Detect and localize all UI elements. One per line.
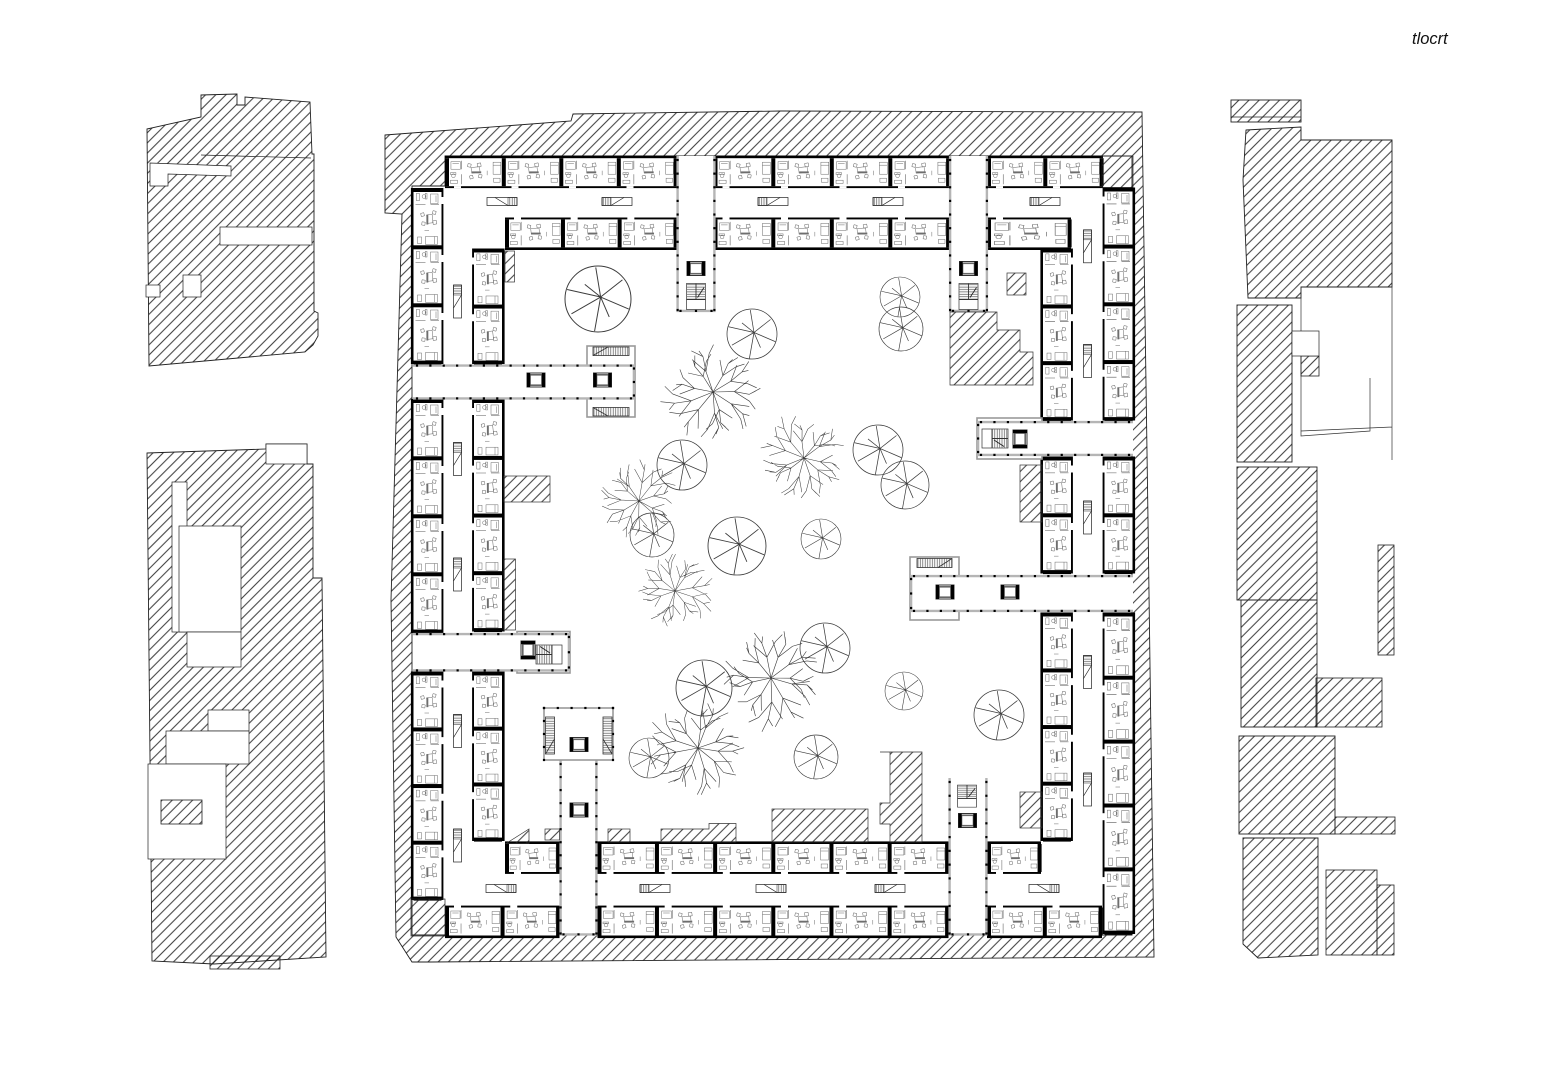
- svg-text:tlocrt: tlocrt: [1412, 30, 1449, 48]
